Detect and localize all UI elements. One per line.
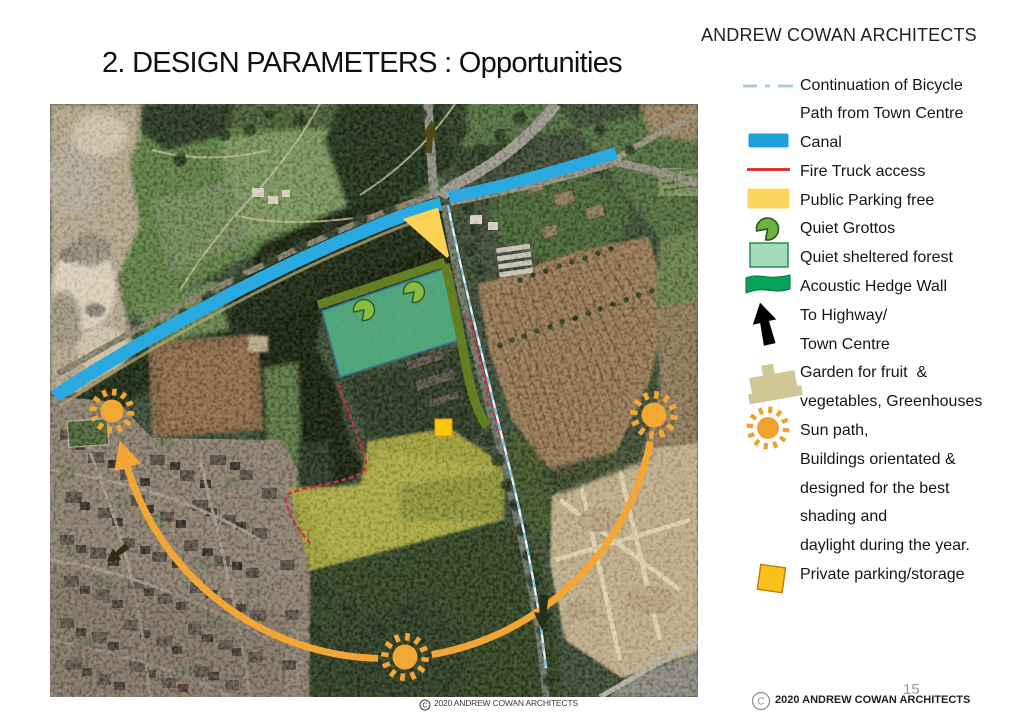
svg-text:C: C bbox=[757, 697, 764, 708]
svg-text:C: C bbox=[422, 701, 428, 710]
